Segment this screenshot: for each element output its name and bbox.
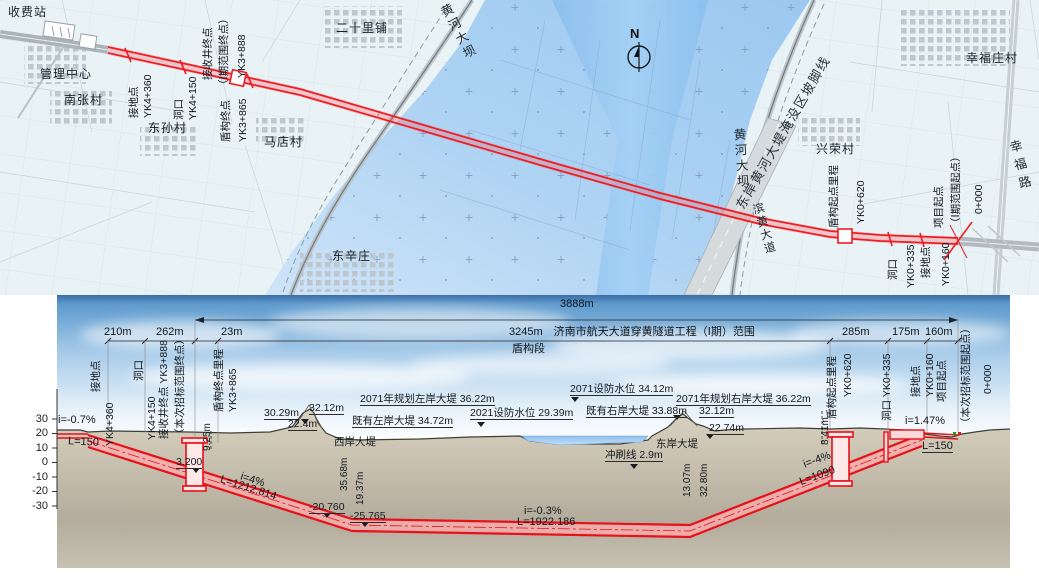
ann-low-25765: -25.765 (350, 511, 386, 523)
elev-10: 10 (22, 442, 48, 454)
map-ck-touchdown-right-ch: YK0+160 (940, 243, 952, 287)
dim-total: 3888m (560, 298, 594, 310)
ann-west-dike-depth: 19.37m (355, 472, 367, 505)
st-shield-end-ch: YK3+865 (227, 369, 239, 413)
label-xingfuzhuang-village: 幸福庄村 (966, 52, 1018, 65)
ann-existing-right-dike: 既有右岸大堤 33.88m (586, 406, 687, 418)
ann-flood-2021: 2021设防水位 29.39m (470, 408, 573, 420)
map-ck-shield-start: 盾构起点里程 (828, 165, 840, 228)
launch-shaft-symbol (838, 229, 852, 243)
map-ck-touchdown-right: 接地点 (920, 247, 932, 279)
st-portal-left: 洞口 (133, 360, 145, 381)
grade-mid-len: L=1922.186 (517, 517, 575, 528)
st-project-ch: 0+000 (982, 365, 994, 395)
label-nanzhang-village: 南张村 (64, 94, 103, 107)
north-label: N (630, 26, 639, 41)
label-management-center: 管理中心 (40, 68, 92, 81)
map-ck-portal-right: 洞口 (887, 259, 899, 280)
ann-32-12-left: 32.12m (309, 403, 344, 415)
plan-map-drawing (0, 0, 1039, 295)
grade-left-approach-len: L=150 (68, 436, 99, 449)
ann-flood-2071: 2071设防水位 34.12m (570, 384, 673, 396)
dim-841: 8.41m (820, 417, 832, 445)
st-project-start: 项目起点 (936, 360, 948, 402)
map-ck-portal-right-ch: YK0+335 (905, 245, 917, 289)
ann-planned-right-dike: 2071年规划右岸大堤 36.22m (676, 394, 811, 406)
map-ck-shield-start-ch: YK0+620 (855, 181, 867, 225)
map-ck-receiving-scope: （Ⅰ期范围终点） (218, 13, 230, 90)
dim-925: 9.25m (202, 423, 214, 451)
label-dongsun-village: 东孙村 (148, 122, 187, 135)
map-ck-portal-left: 洞口 (173, 99, 185, 120)
st-project-scope: （本次招标范围起点） (960, 323, 972, 428)
st-portal-left-ch: YK4+150 (146, 397, 158, 441)
elev-n20: -20 (22, 485, 48, 497)
elevation-axis (52, 389, 57, 509)
st-touchdown-right: 接地点 (910, 366, 922, 398)
st-receiving-scope: （本次招标范围终点） (174, 334, 186, 439)
plan-map: 收费站 管理中心 南张村 东孙村 马店村 二十里铺 东辛庄 兴荣村 幸福庄村 N… (0, 0, 1039, 295)
map-ck-shield-end: 盾构终点 (220, 100, 232, 142)
label-dongxinzhuang: 东辛庄 (332, 250, 371, 263)
longitudinal-profile: 3888m 210m 262m 23m 3245m 济南市航天大道穿黄隧道工程（… (0, 293, 1039, 576)
ann-low-20760: -20.760 (309, 502, 345, 514)
map-ck-project-scope: （Ⅰ期范围起点） (950, 151, 962, 228)
dim-210: 210m (104, 326, 132, 338)
map-ck-project-start: 项目起点 (933, 186, 945, 228)
label-toll-station: 收费站 (8, 6, 47, 19)
map-ck-touchdown-left-ch: YK4+360 (142, 75, 154, 119)
ann-planned-left-dike: 2071年规划左岸大堤 36.22m (360, 394, 495, 406)
ann-east-dike-depth: 13.07m (682, 464, 694, 497)
dim-23: 23m (221, 326, 242, 338)
dim-range-title: 3245m 济南市航天大道穿黄隧道工程（Ⅰ期）范围 (509, 326, 755, 338)
ann-east-dike-height: 32.80m (699, 464, 711, 497)
st-shield-start: 盾构起点里程 (826, 356, 838, 419)
elev-n30: -30 (22, 500, 48, 512)
st-shield-end: 盾构终点里程 (213, 349, 225, 412)
ann-west-dike-height: 35.68m (339, 458, 351, 491)
dim-160: 160m (925, 326, 953, 338)
st-receiving-shaft: 接收井终点 YK3+888 (158, 340, 170, 439)
st-portal-right: 洞口 YK0+335 (881, 354, 893, 421)
dim-285: 285m (842, 326, 870, 338)
ann-32-12-right: 32.12m (699, 406, 734, 418)
map-ck-shield-end-ch: YK3+865 (237, 99, 249, 143)
map-ck-portal-left-ch: YK4+150 (187, 77, 199, 121)
ann-22-74: 22.74m (709, 423, 744, 435)
ann-22-4: 22.4m (288, 419, 317, 431)
grade-left-approach: i=-0.7% (58, 415, 96, 426)
st-shield-start-ch: YK0+620 (842, 354, 854, 398)
dim-175: 175m (892, 326, 920, 338)
st-touchdown-right-ch: YK0+160 (924, 354, 936, 398)
elev-30: 30 (22, 413, 48, 425)
st-touchdown-left-ch: YK4+360 (104, 403, 116, 447)
grade-right-approach: i=1.47% (905, 416, 945, 427)
map-ck-touchdown-left: 接地点 (128, 87, 140, 119)
map-ck-receiving-shaft: 接收井终点 (202, 28, 214, 81)
ann-existing-left-dike: 既有左岸大堤 34.72m (352, 416, 453, 428)
label-shield-section: 盾构段 (512, 343, 545, 355)
ann-west-dike: 西岸大堤 (334, 437, 376, 448)
grade-right-approach-len: L=150 (922, 441, 953, 453)
elev-n10: -10 (22, 471, 48, 483)
map-ck-project-ch: 0+000 (973, 185, 985, 215)
ann-level-3200: 3.200 (176, 457, 202, 469)
label-madian-village: 马店村 (264, 136, 303, 149)
st-touchdown-left: 接地点 (90, 361, 102, 393)
elev-0: 0 (22, 456, 48, 468)
elev-20: 20 (22, 427, 48, 439)
label-ershilipu: 二十里铺 (336, 22, 388, 35)
ann-scour-line: 冲刷线 2.9m (605, 450, 663, 462)
label-xingrong-village: 兴荣村 (816, 143, 855, 156)
drawing-sheet: 收费站 管理中心 南张村 东孙村 马店村 二十里铺 东辛庄 兴荣村 幸福庄村 N… (0, 0, 1039, 576)
map-ck-receiving-ch: YK3+888 (236, 35, 248, 79)
